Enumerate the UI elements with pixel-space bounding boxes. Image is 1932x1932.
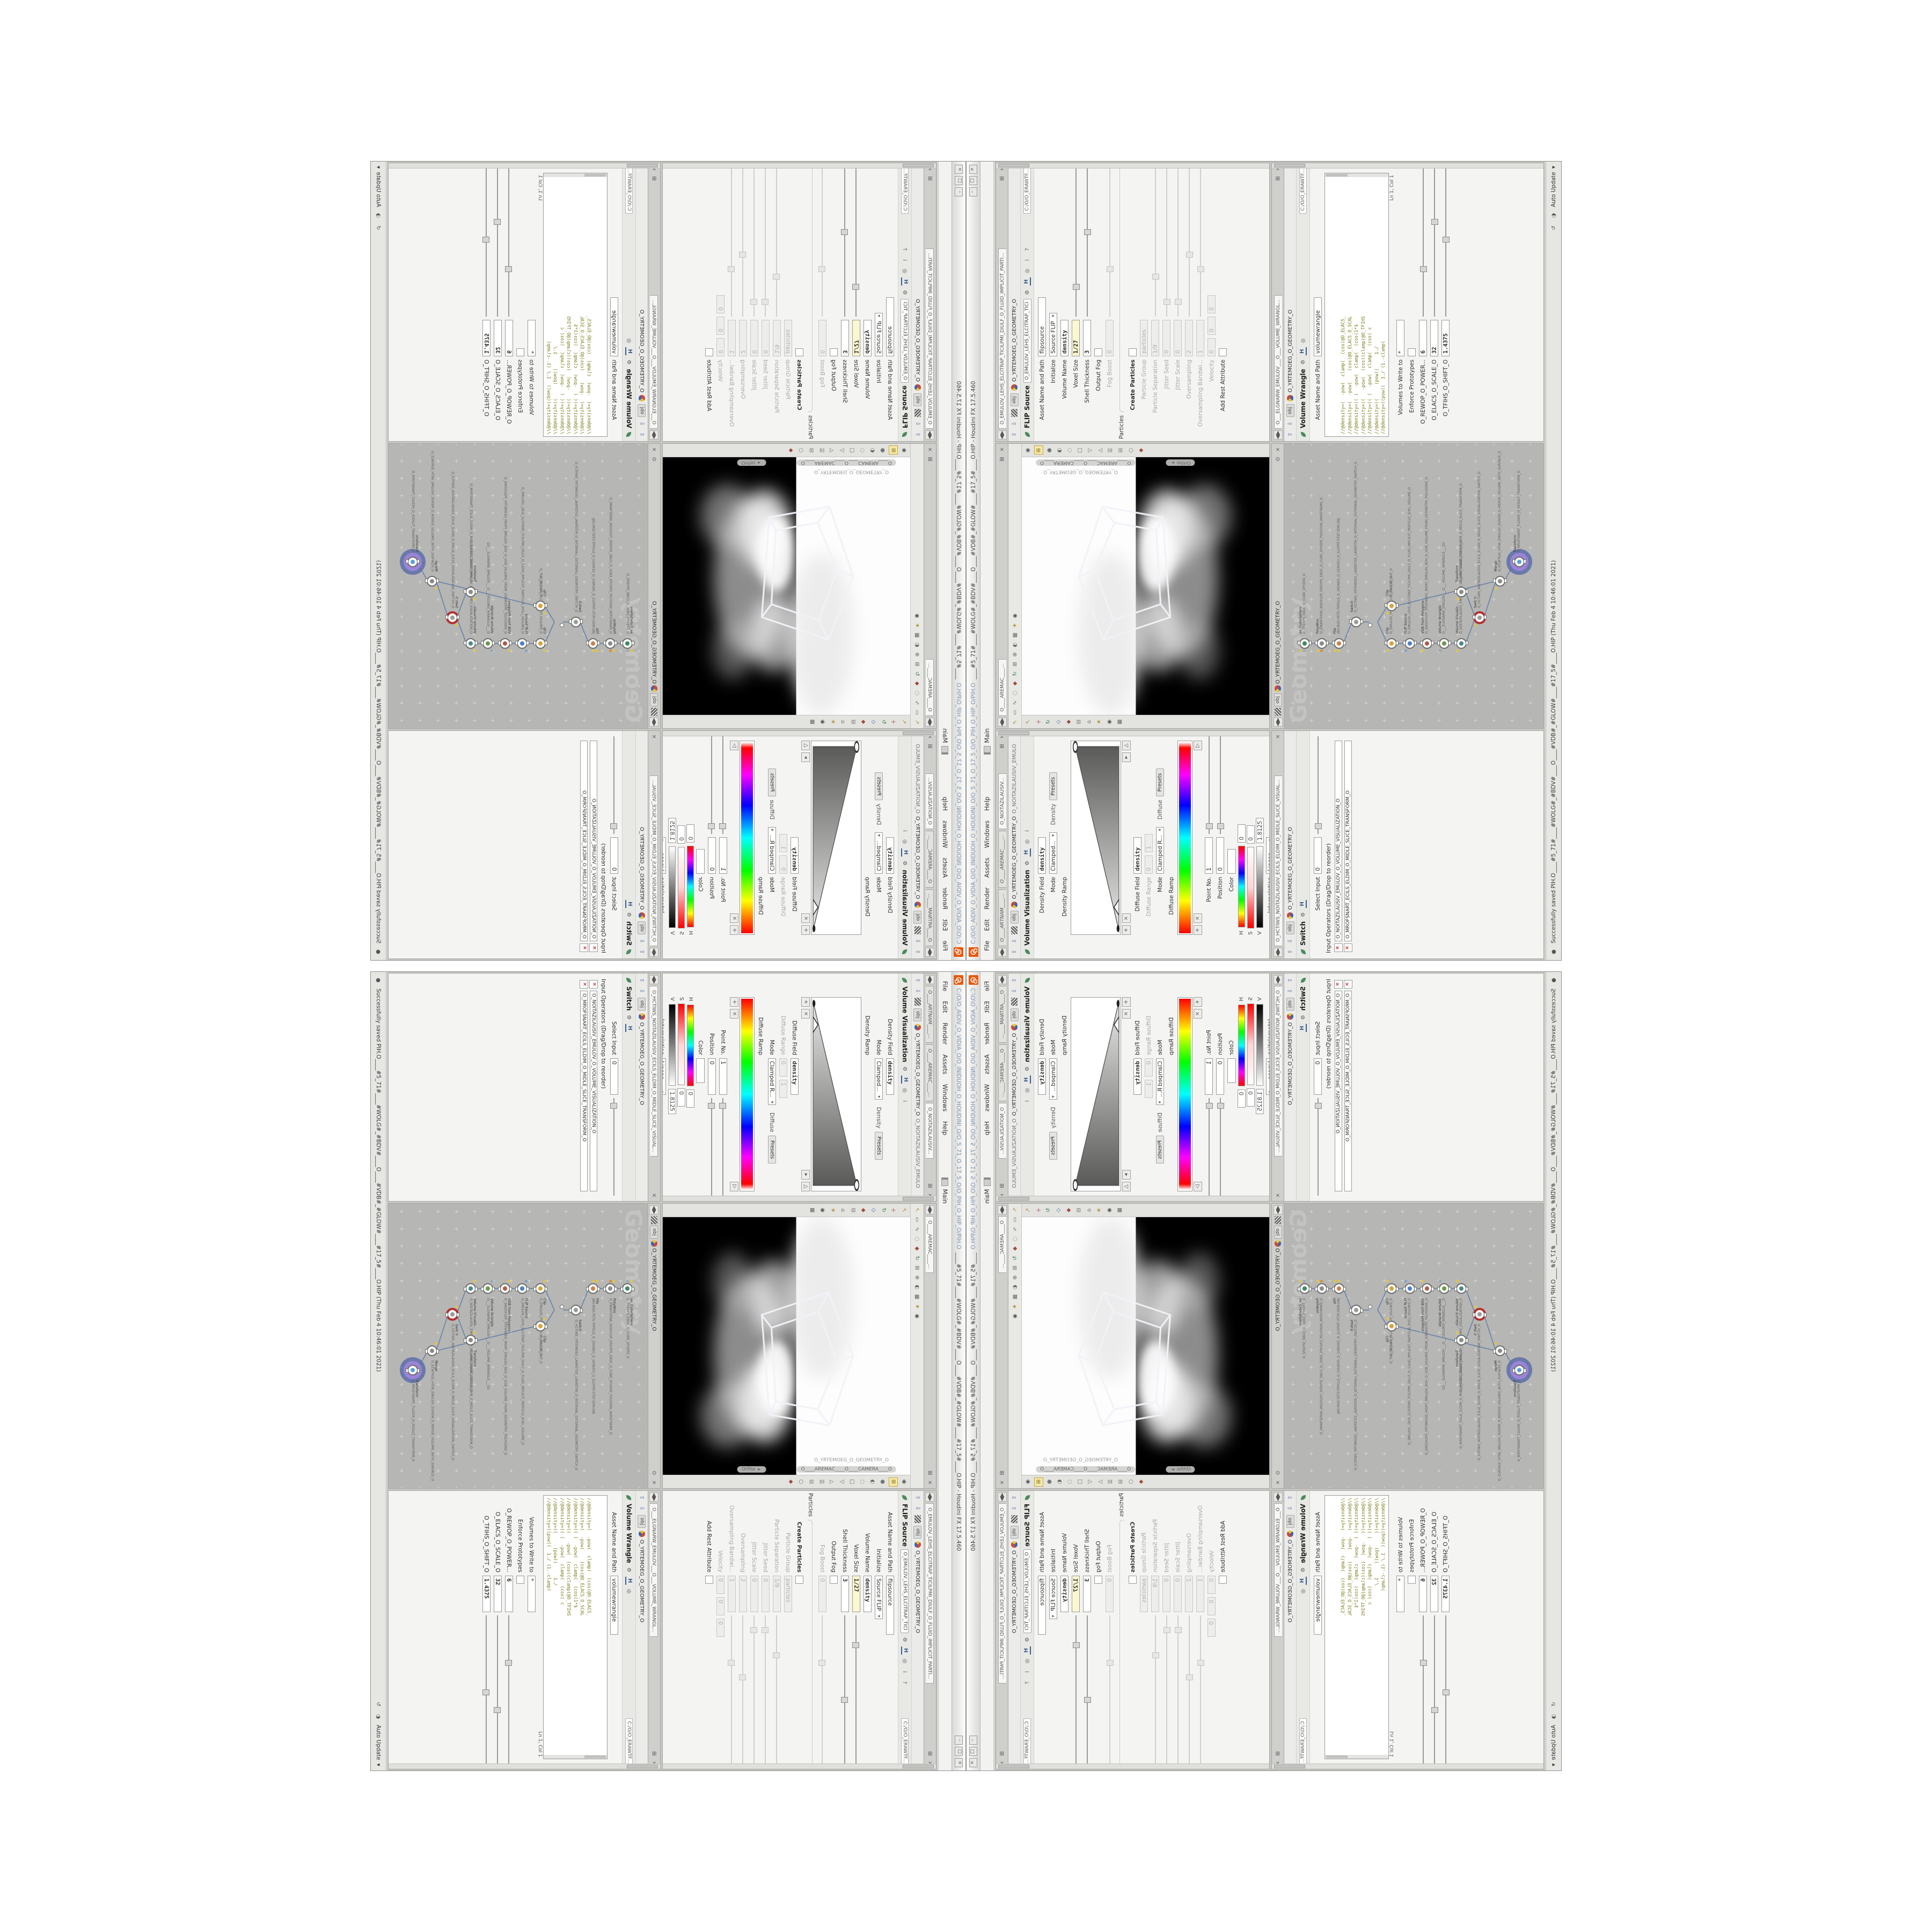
eye-icon[interactable]: ◉ [1024,447,1032,455]
scale-icon[interactable]: ◇ [869,718,877,726]
houdini-help-icon[interactable]: H [902,1646,909,1655]
light-icon[interactable]: ☀ [1095,718,1103,726]
hsv-strip[interactable] [669,846,676,928]
pane-layout-icon[interactable]: ▦ [913,631,921,639]
pane-split-icon[interactable]: ⊞ [998,1469,1006,1477]
pane-arrows-icon[interactable]: ◀▶ [1274,1205,1283,1214]
tab-camera[interactable]: O____AREMAC____... [998,1044,1006,1101]
nav-back-icon[interactable]: ⇧ [1011,1494,1019,1502]
param-field[interactable]: particles [784,1576,792,1612]
param-slider[interactable] [494,1615,501,1763]
input-operator-field[interactable]: O_NOITAZILAUSIV_EMULOV_O_VOLUME_VISUALIZ… [1335,991,1342,1191]
grid-icon[interactable]: ⊞ [913,660,921,668]
node-flag[interactable] [1439,1280,1441,1283]
rotate-icon[interactable]: ↻ [913,670,921,678]
network-node-polywire[interactable]: PolyWireO_EMARFERIW_NOGYLOP_EREHPS_EBUC_… [605,638,616,649]
pane-scrollbar[interactable] [996,1763,1269,1769]
hsv-value-field[interactable]: 1.8125 [668,1089,676,1114]
pane-scrollbar[interactable] [663,163,936,169]
param-field[interactable]: particles [784,320,792,356]
window-button[interactable]: × [969,165,977,174]
param-slider[interactable] [1174,1615,1181,1763]
take-icon[interactable] [1275,708,1281,716]
diffuse-ramp-editor[interactable] [1177,741,1192,935]
param-slider[interactable] [1217,736,1224,834]
update-mode-selector[interactable]: Auto Update ▾ [1550,1725,1557,1766]
param-field[interactable]: 0 [779,1058,787,1077]
param-field[interactable]: 0 [716,1619,724,1637]
network-node-vdb-from-polygons[interactable]: VDB from PolygonsO_SNOGYLOP_YRTEMOEG_MOR… [1422,1283,1432,1294]
path-geometry[interactable]: O_YRTEMOEG_O_GEOMETRY_O [1287,1022,1293,1105]
tab-volume-wrangle[interactable]: O___ELGNARW_EMULOV___O___VOLUME_WRANGL..… [650,1503,658,1637]
param-field[interactable]: 1 [1205,1058,1213,1095]
obj-context-chip[interactable]: obj [1011,1008,1019,1021]
obj-context-chip[interactable]: obj [1274,693,1282,706]
nav-forward-icon[interactable]: ⇩ [638,987,646,995]
asset-name-field[interactable]: volumewrangle [1314,1576,1322,1635]
path-geometry[interactable]: O_YRTEMOEG_O_GEOMETRY_O [1287,1540,1293,1622]
gear-icon[interactable]: ⚙ [625,1566,633,1574]
handles-icon[interactable]: ◆ [859,718,867,726]
menu-file[interactable]: File [940,976,950,996]
search-icon[interactable]: ◎ [625,1587,633,1596]
title-bar[interactable]: C:/O/O_AIDIV_O_VIDIA_O/O_INIDUOH_O_HOUDI… [967,972,980,1770]
search-icon[interactable]: ◎ [1023,1086,1031,1094]
node-flag[interactable] [1386,649,1389,652]
pane-arrows-icon[interactable]: ◀▶ [1274,948,1283,957]
network-canvas[interactable]: +++++++++++++++++++ +++++++++++++++++++ … [1284,1204,1543,1488]
hsv-value-field[interactable]: 0 [1238,1089,1246,1108]
node-flag[interactable] [630,1280,633,1283]
tab-visualization[interactable]: O_NOITAZILAUSIV... [926,773,934,829]
ramp-add-point-icon[interactable]: + [1194,997,1202,1007]
houdini-help-icon[interactable]: H [1300,1577,1307,1585]
node-instance-tab[interactable]: O_EMULOV_LEHS_ELCITRAP_TICI [901,1549,909,1633]
code-scrollbar[interactable] [1325,173,1388,177]
home-icon[interactable]: ⌂ [1085,718,1093,726]
pause-hand-icon[interactable]: ◑ [375,211,383,219]
param-slider[interactable] [1419,1615,1426,1763]
light-icon[interactable]: ☀ [1011,621,1019,630]
handles-icon[interactable]: ◆ [1011,679,1019,687]
search-icon[interactable]: ◎ [1023,267,1031,275]
viewport-canvas[interactable]: O____AREMAC____O____CAMERA____O Ortho ▾ … [1022,1217,1269,1475]
menu-windows[interactable]: Windows [982,1079,992,1116]
param-slider[interactable] [483,169,490,317]
menu-help[interactable]: Help [982,1116,992,1140]
gear-icon[interactable]: ⚙ [625,911,633,919]
network-node-transform[interactable]: TransformO_MROFSNART_ECILS_ELDIM_O_MIDLE… [1456,1335,1467,1345]
grid-icon[interactable]: ⊞ [1011,660,1019,668]
param-dropdown[interactable]: Clamped R... [1156,827,1164,874]
network-node-switch[interactable]: SwitchO_HCTIWS_NOITAZILAUSIV_ECILS_ELDIM… [447,1309,458,1320]
pane-arrows-icon[interactable]: ◀▶ [650,718,659,727]
home-icon[interactable]: ⌂ [839,1206,847,1214]
nav-back-icon[interactable]: ⇧ [1286,976,1294,984]
network-node-clip[interactable]: ClipO_EMULOV_PILC_O_CLIP_VOLUME_O [535,638,546,649]
handles-icon[interactable]: ◆ [1011,1245,1019,1253]
asset-name-field[interactable]: volumewrangle [610,297,618,356]
ring-icon[interactable]: ◌ [1011,689,1019,697]
viewport-camera-pill[interactable]: O____AREMAC____O____CAMERA____O [797,1466,896,1473]
presets-button[interactable]: Presets [1156,1136,1164,1164]
menu-assets[interactable]: Assets [982,1049,992,1079]
param-field[interactable]: density [1060,320,1069,356]
network-node-volume-visualiz-[interactable]: Volume Visualiz...O_NOITAZILAUSIV_EMULOV… [1456,1283,1467,1294]
snap-icon[interactable]: ⊟ [1075,1206,1083,1214]
network-node-transform[interactable]: TransformO_MROFSNART_TLUSER_O_RESULT_TRA… [407,557,418,567]
grid-yellow-icon[interactable]: ⊞ [889,1477,898,1487]
take-icon[interactable] [1011,926,1018,934]
ramp-marker-icon[interactable]: ▸ [1122,752,1131,762]
handles-icon[interactable]: ◆ [859,1206,867,1214]
param-dropdown[interactable]: Clamped... [1049,832,1057,874]
pane-close-icon[interactable]: × [650,733,658,741]
pane-arrows-icon[interactable]: ◀▶ [998,1205,1007,1214]
select-icon[interactable]: ↖ [913,1206,921,1214]
network-node-switch[interactable]: SwitchO_HCTIWS_YRTEMOEG_LANRETXE_LANRETN… [570,1305,581,1315]
network-node-file[interactable]: FileJBO.M3D.PETS.TRPDLS_O_3SUNEG_O_GENUS… [588,638,598,649]
info-icon[interactable]: i [901,827,909,835]
search-icon[interactable]: ◎ [901,1086,909,1094]
node-flag[interactable] [1495,1342,1497,1345]
nav-back-icon[interactable]: ⇧ [914,948,922,956]
tab-scene-viewer[interactable]: O____AREMAC____... [926,1216,934,1273]
viewport-ortho-pill[interactable]: Ortho ▾ [737,1466,766,1473]
pane-arrows-icon[interactable]: ◀▶ [650,1205,659,1214]
param-field[interactable]: 1 [719,1058,727,1095]
handles-icon[interactable]: ◆ [1065,1206,1073,1214]
houdini-help-icon[interactable]: H [1300,900,1307,908]
menu-render[interactable]: Render [982,1018,992,1050]
obj-context-chip[interactable]: obj [1286,921,1294,934]
info-icon[interactable]: i [901,1097,909,1105]
shade-icon[interactable]: ◐ [913,641,921,649]
eye-icon[interactable]: ◉ [1106,718,1114,726]
menu-render[interactable]: Render [940,1018,950,1050]
ramp-flip-icon[interactable]: △ [1122,1182,1131,1191]
pane-split-icon[interactable]: ⊞ [998,174,1006,182]
node-flag[interactable] [1316,649,1319,652]
remove-input-icon[interactable]: × [1344,980,1352,989]
remove-input-icon[interactable]: × [580,943,588,952]
window-button[interactable]: □ [969,176,977,185]
square-icon[interactable]: □ [848,447,856,455]
param-slider[interactable] [1163,1615,1170,1763]
home-icon[interactable]: ⌂ [839,718,847,726]
pane-close-icon[interactable]: × [998,1479,1006,1487]
diffuse-ramp-editor[interactable] [1177,997,1192,1191]
tab-switch[interactable]: O_HCTIWS_NOITAZILAUSIV_ECILS_ELDIM_O_MID… [1274,775,1282,946]
move-icon[interactable]: ＋ [1034,1206,1042,1214]
network-node-clip[interactable]: ClipO_PILC_O_CLIP_O [1386,1321,1397,1331]
network-node-transform[interactable]: TransformO_MROFSNART_ECILS_ELDIM_O_MIDLE… [1456,587,1467,597]
nav-forward-icon[interactable]: ⇩ [1011,1504,1019,1512]
window-button[interactable]: × [955,1758,963,1767]
param-dropdown[interactable]: Linear [663,837,666,874]
network-node-vdb-from-polygons[interactable]: VDB from PolygonsO_SNOGYLOP_YRTEMOEG_MOR… [1422,638,1432,649]
param-slider[interactable] [1431,169,1438,317]
pause-hand-icon[interactable]: ◑ [1550,1713,1558,1721]
pane-close-icon[interactable]: × [926,445,934,453]
eye-icon[interactable]: ◉ [1024,1478,1032,1486]
param-field[interactable]: 6 [505,320,513,356]
tab-flip-source[interactable]: O_EMULOV_LEHS_ELCITRAP_TICILPMI_DIULF_O_… [926,1503,934,1684]
obj-context-chip[interactable]: obj [650,1226,658,1239]
nav-back-icon[interactable]: ⇧ [1286,1494,1294,1502]
color-swatch[interactable] [697,1058,705,1083]
path-geometry[interactable]: O_YRTEMOEG_O_GEOMETRY_O [1012,1033,1018,1116]
node-flag[interactable] [626,649,629,652]
param-dropdown[interactable]: Clamped R... [768,827,776,874]
node-flag[interactable] [1303,1280,1306,1283]
network-node-clip[interactable]: ClipO_EMULOV_PILC_O_CLIP_VOLUME_O [535,1283,546,1294]
param-field[interactable]: 1 [1145,1080,1153,1098]
menu-file[interactable]: File [940,936,950,956]
param-field[interactable]: 1.4375 [482,1576,491,1612]
param-field[interactable]: 6 [505,1576,513,1612]
input-operator-field[interactable]: O_MROFSNART_ECILS_ELDIM_O_MIDLE_SLICE_TR… [580,991,588,1191]
param-dropdown[interactable]: Source FLIP [1049,1576,1057,1619]
obj-context-chip[interactable]: obj [914,1008,922,1021]
param-field[interactable]: 1.4375 [1441,320,1450,356]
gear-icon[interactable]: ⚙ [901,1636,909,1644]
eye-icon[interactable]: ◉ [1011,612,1019,620]
viewport-camera-pill[interactable]: O____AREMAC____O____CAMERA____O [1036,1466,1135,1473]
nav-back-icon[interactable]: ⇧ [1286,430,1294,438]
rotate-icon[interactable]: ↻ [1044,718,1052,726]
network-path[interactable]: O_YRTEMOEG_O_GEOMETRY_O [652,1248,657,1331]
collapse-icon[interactable]: ⊟ [807,1478,815,1486]
param-field[interactable]: 0 [1174,1576,1182,1612]
nav-forward-icon[interactable]: ⇩ [914,937,922,945]
presets-button[interactable]: Presets [1049,772,1057,801]
pane-split-icon[interactable]: ⊞ [998,1750,1006,1758]
network-node-ae-cubesphere[interactable]: ae_CubeSphereO_EREHPS_EBUC_O_CUBE_SPHERE… [622,638,633,649]
network-node-file[interactable]: FileJBO.M3D.PETS.TRPDLS_O_3SUNEG_O_GENUS… [1334,1283,1344,1294]
houdini-help-icon[interactable]: H [902,277,909,286]
code-scrollbar[interactable] [1325,1755,1388,1759]
param-field[interactable]: * [528,1576,536,1612]
pane-split-icon[interactable]: ⊞ [926,742,934,750]
take-icon[interactable] [651,1216,657,1224]
param-slider[interactable] [720,1098,727,1196]
asset-name-field[interactable]: flipsource [886,1576,894,1635]
param-checkbox[interactable] [1094,1576,1102,1584]
param-slider[interactable] [506,1615,513,1763]
pane-split-icon[interactable]: ⊞ [926,1469,934,1477]
input-operator-field[interactable]: O_MROFSNART_ECILS_ELDIM_O_MIDLE_SLICE_TR… [1344,991,1352,1191]
take-icon[interactable] [914,409,921,417]
eye-icon[interactable]: ◉ [900,447,908,455]
select-icon[interactable]: ↖ [1011,718,1019,726]
pane-split-icon[interactable]: ⊞ [926,174,934,182]
snap-icon[interactable]: ⊟ [849,1206,857,1214]
network-node-transform[interactable]: TransformO_MROFSNART_ECILS_ELDIM_O_MIDLE… [465,587,476,597]
pane-arrows-icon[interactable]: ◀▶ [1274,975,1283,984]
param-dropdown[interactable]: Clamped... [875,832,883,874]
eye-icon[interactable]: ◉ [1106,1206,1114,1214]
param-field[interactable]: density [791,1058,799,1095]
node-flag[interactable] [543,612,546,614]
tab-mantra[interactable]: O____ARTNAM____... [998,986,1006,1043]
path-geometry[interactable]: O_YRTEMOEG_O_GEOMETRY_O [1012,299,1018,382]
houdini-help-icon[interactable]: H [1024,848,1031,857]
nav-forward-icon[interactable]: ⇩ [914,987,922,995]
param-dropdown[interactable]: Clamped R... [1156,1058,1164,1105]
param-field[interactable]: 1/27 [1072,1576,1080,1612]
menu-windows[interactable]: Windows [982,816,992,853]
param-slider[interactable] [1205,1098,1212,1196]
nav-forward-icon[interactable]: ⇩ [1286,420,1294,428]
tab-volume-wrangle[interactable]: O___ELGNARW_EMULOV___O___VOLUME_WRANGL..… [1274,295,1282,429]
color-swatch[interactable] [697,849,705,874]
param-slider[interactable] [1174,169,1181,317]
title-bar[interactable]: C:/O/O_AIDIV_O_VIDIA_O/O_INIDUOH_O_HOUDI… [967,162,980,960]
node-flag[interactable] [508,649,510,652]
param-checkbox[interactable] [516,348,524,356]
pane-split-icon[interactable]: ⊞ [650,174,658,182]
param-slider[interactable] [1072,1615,1079,1763]
node-flag[interactable] [1299,1280,1302,1283]
param-slider[interactable] [728,1615,735,1763]
param-slider[interactable] [1084,169,1091,317]
ramp-marker-icon[interactable]: ▸ [801,752,810,762]
param-slider[interactable] [773,1615,780,1763]
network-node-clip[interactable]: ClipO_PILC_O_CLIP_O [535,601,546,611]
param-field[interactable]: 0 [610,837,618,874]
grid-yellow-icon[interactable]: ⊞ [1034,446,1043,455]
tab-scene-viewer[interactable]: O____AREMAC____... [998,659,1006,716]
move-icon[interactable]: ＋ [890,718,898,726]
square-icon[interactable]: □ [1076,447,1084,455]
take-icon[interactable] [914,926,921,934]
tab-visualization[interactable]: O_NOITAZILAUSIV... [998,773,1006,829]
param-slider[interactable] [853,1615,860,1763]
houdini-help-icon[interactable]: H [1300,1024,1307,1032]
nav-back-icon[interactable]: ⇧ [1011,430,1019,438]
node-flag[interactable] [1456,598,1459,601]
node-flag[interactable] [613,649,616,652]
eye-icon[interactable]: ◉ [913,612,921,620]
tab-flip-source[interactable]: O_EMULOV_LEHS_ELCITRAP_TICILPMI_DIULF_O_… [998,248,1006,429]
search-icon[interactable]: ◎ [901,267,909,275]
nav-forward-icon[interactable]: ⇩ [1286,937,1294,945]
nav-back-icon[interactable]: ⇧ [638,1494,646,1502]
obj-context-chip[interactable]: obj [1011,1526,1019,1539]
gear-icon[interactable]: ⚙ [1023,859,1031,867]
pane-layout-icon[interactable]: ▦ [913,1293,921,1301]
color-swatch[interactable] [1227,1058,1236,1083]
param-field[interactable]: 0 [1207,1619,1216,1637]
param-slider[interactable] [1084,1615,1091,1763]
refresh-icon[interactable]: ↺ [375,1700,383,1708]
menu-icon[interactable]: ☰ [817,447,825,455]
pane-close-icon[interactable]: × [650,445,658,453]
param-checkbox[interactable] [705,1576,713,1584]
tri-up-icon[interactable]: △ [828,1478,836,1486]
hsv-value-field[interactable]: 0 [1238,824,1246,843]
param-field[interactable]: 0 [708,837,716,874]
param-field[interactable]: 1.4375 [482,320,491,356]
pause-hand-icon[interactable]: ◑ [375,1713,383,1721]
obj-context-chip[interactable]: obj [1286,404,1294,417]
collapse-icon[interactable]: ⊟ [1117,447,1125,455]
path-node[interactable]: O_NOITAZILAUSIV_EMULO [915,744,921,814]
ramp-del-point-icon[interactable]: × [730,1009,738,1019]
search-icon[interactable]: ◎ [1023,838,1031,846]
network-node-switch[interactable]: SwitchO_HCTIWS_NOITAZILAUSIV_ECILS_ELDIM… [1474,612,1485,623]
param-slider[interactable] [506,169,513,317]
param-slider[interactable] [762,169,769,317]
param-field[interactable]: 0 [1162,320,1170,356]
node-flag[interactable] [1422,649,1424,652]
param-field[interactable]: 3 [1083,1576,1091,1612]
ring-icon[interactable]: ◌ [858,447,866,455]
param-field[interactable]: density [1060,1576,1069,1612]
shade-icon[interactable]: ◐ [1011,1283,1019,1291]
hsv-strip[interactable] [1238,1005,1245,1086]
ramp-marker-icon[interactable]: ▷ [730,741,738,750]
path-geometry[interactable]: O_YRTEMOEG_O_GEOMETRY_O [639,827,645,910]
network-dot[interactable] [560,623,564,627]
handles-icon[interactable]: ◆ [1137,1478,1145,1486]
window-button[interactable]: – [969,1736,977,1745]
tri-up-icon[interactable]: △ [828,447,836,455]
info-icon[interactable]: i [901,256,909,264]
tri-down-icon[interactable]: ▽ [838,1478,846,1486]
ramp-add-point-icon[interactable]: + [801,997,810,1007]
houdini-help-icon[interactable]: H [1300,347,1307,355]
snap-icon[interactable]: ⊟ [849,718,857,726]
param-field[interactable]: 1/27 [1072,320,1080,356]
circle-icon[interactable]: ○ [1127,1478,1135,1486]
param-slider[interactable] [819,169,826,317]
param-field[interactable]: 1 [728,1576,736,1612]
window-button[interactable]: □ [955,176,963,185]
pane-arrows-icon[interactable]: ◀▶ [998,1492,1007,1502]
pane-arrows-icon[interactable]: ◀▶ [998,430,1007,440]
tab-scene-viewer[interactable]: O____AREMAC____... [998,1216,1006,1273]
param-field[interactable]: 1 [728,320,736,356]
path-geometry[interactable]: O_YRTEMOEG_O_GEOMETRY_O [639,1022,645,1105]
hsv-strip[interactable] [1256,846,1263,928]
network-node-volume-wrangle[interactable]: Volume WrangleO___ELGNARW_EMULOV___O___V… [482,638,493,649]
take-icon[interactable] [651,708,657,716]
gear-icon[interactable]: ⚙ [625,1013,633,1021]
hsv-value-field[interactable]: 1.8125 [1256,818,1264,843]
menu-assets[interactable]: Assets [940,853,950,882]
network-path[interactable]: O_YRTEMOEG_O_GEOMETRY_O [1275,601,1281,684]
param-field[interactable]: 0 [716,295,724,313]
window-button[interactable]: × [955,165,963,174]
pane-scrollbar[interactable] [1272,163,1543,169]
title-bar[interactable]: C:/O/O_AIDIV_O_VIDIA_O/O_INIDUOH_O_HOUDI… [952,972,965,1770]
param-checkbox[interactable] [1129,1576,1137,1584]
param-slider[interactable] [1197,169,1204,317]
menu-assets[interactable]: Assets [940,1049,950,1079]
param-field[interactable]: 2 [1185,320,1193,356]
obj-context-chip[interactable]: obj [914,911,922,924]
pane-layout-icon[interactable]: ▦ [1011,1293,1019,1301]
info-icon[interactable]: i [1023,1097,1031,1105]
presets-button[interactable]: Presets [1049,1132,1057,1160]
node-flag[interactable] [1474,624,1477,626]
network-dot[interactable] [1368,623,1372,627]
update-mode-selector[interactable]: Auto Update ▾ [375,1725,382,1766]
gear-icon[interactable]: ⚙ [1023,1065,1031,1073]
houdini-help-icon[interactable]: H [626,900,633,908]
